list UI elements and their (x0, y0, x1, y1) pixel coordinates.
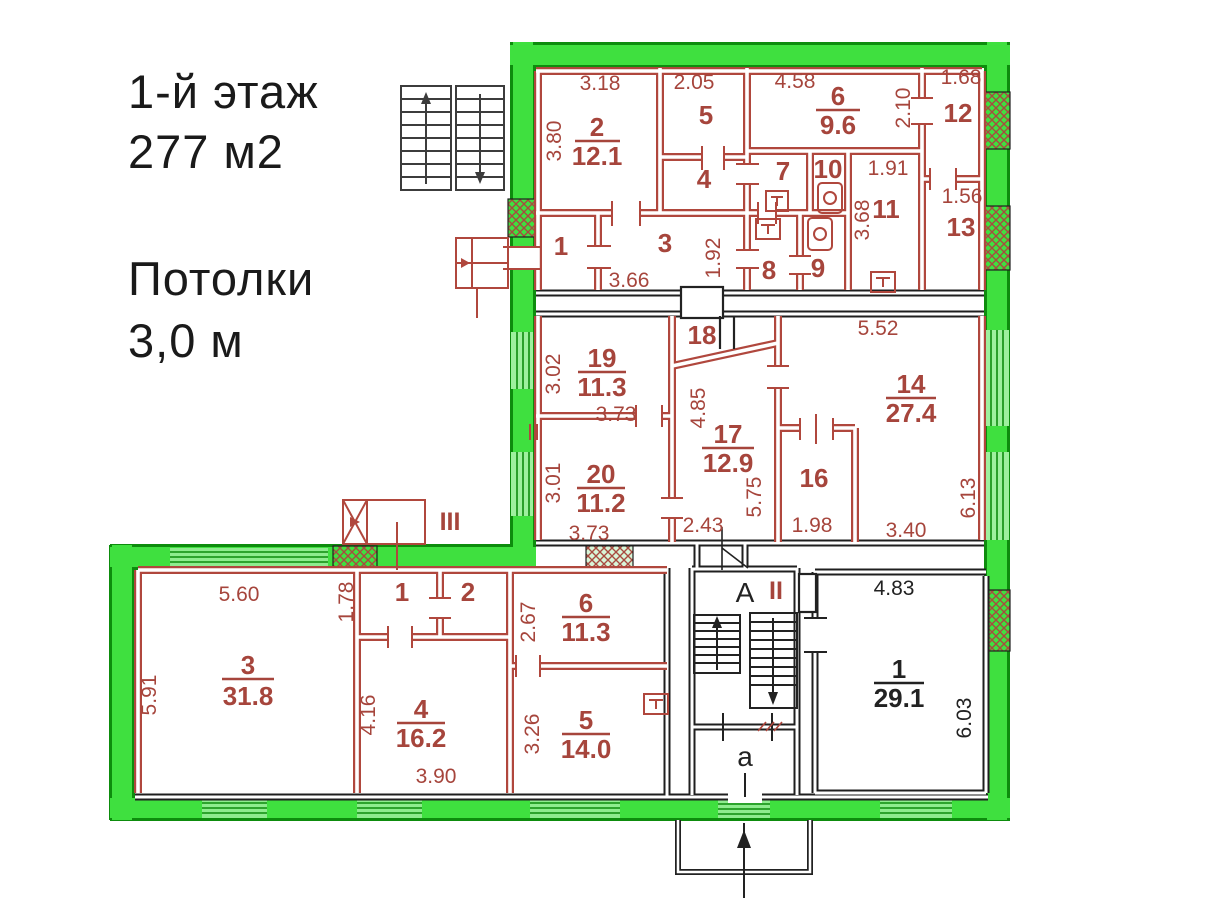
room19-area: 11.3 (577, 372, 626, 402)
room1b-area: 29.1 (874, 683, 925, 713)
door-opening (612, 201, 640, 226)
room12-number: 12 (944, 98, 973, 128)
ceilings-label: Потолки (128, 252, 314, 305)
room5b-height-dim: 3.26 (521, 714, 544, 755)
room16-width-dim: 1.98 (792, 514, 833, 537)
door-opening (736, 164, 759, 184)
hatch-icon (984, 92, 1010, 149)
door-opening (587, 246, 611, 268)
hatch-icon (984, 206, 1010, 270)
room20-area: 11.2 (576, 488, 625, 518)
room5-number: 5 (699, 100, 713, 130)
room17-area: 12.9 (703, 448, 754, 478)
room17-width-dim: 2.43 (683, 514, 724, 537)
room17-height-dim-a: 4.85 (687, 388, 710, 429)
room14-top-width-dim: 5.52 (858, 317, 899, 340)
door-opening (800, 414, 833, 444)
room5b-area: 14.0 (561, 734, 612, 764)
room1t-number: 1 (554, 231, 568, 261)
door-opening (804, 618, 827, 652)
room20-width-dim: 3.73 (569, 522, 610, 545)
room1b-height-dim: 6.03 (953, 698, 976, 739)
room4b-width-dim: 3.90 (416, 765, 457, 788)
toilet-icon (808, 218, 832, 250)
entrance-porch (678, 820, 810, 898)
room11-width-dim: 1.91 (868, 157, 909, 180)
door-opening (429, 598, 451, 618)
stairwell-stairs (694, 613, 797, 741)
room6b-height-dim: 2.67 (517, 602, 540, 643)
room4b-height-dim: 4.16 (357, 695, 380, 736)
room20-number: 20 (587, 459, 616, 489)
exit-letter-mark: а (737, 741, 753, 772)
ceilings-value: 3,0 м (128, 314, 244, 367)
door-opening (661, 498, 683, 518)
room13-number: 13 (947, 212, 976, 242)
room1s-height-dim: 1.78 (335, 582, 358, 623)
room12-width-dim: 1.68 (941, 66, 982, 89)
room9-number: 9 (811, 253, 825, 283)
upper-staircase-icon (401, 86, 504, 190)
stairwell-exit-door (728, 773, 762, 803)
door-opening (636, 405, 662, 427)
room14-number: 14 (897, 369, 926, 399)
toilet-icon (818, 183, 842, 213)
room3t-width-dim: 3.66 (609, 269, 650, 292)
window-icon (511, 332, 533, 389)
passage-box (681, 287, 723, 318)
hatch-icon (586, 544, 633, 569)
window-icon (357, 799, 422, 818)
hatch-icon (508, 199, 536, 237)
room3b-width-dim: 5.60 (219, 583, 260, 606)
room6-number: 6 (831, 81, 845, 111)
room14-area: 27.4 (886, 398, 937, 428)
room11-height-dim: 3.68 (851, 200, 874, 241)
door-opening (388, 626, 412, 648)
porch-icon (456, 238, 508, 318)
room16-number: 16 (800, 463, 829, 493)
door-box (799, 574, 816, 612)
room19-number: 19 (588, 343, 617, 373)
roman-two-mark: II (769, 577, 783, 605)
room10-number: 10 (814, 154, 843, 184)
room1b-width-dim: 4.83 (874, 577, 915, 600)
door-opening (789, 256, 811, 274)
door-opening (516, 655, 540, 677)
room19-height-dim: 3.02 (542, 354, 565, 395)
window-icon (985, 330, 1009, 426)
room6-area: 9.6 (820, 110, 856, 140)
room5-width-dim: 2.05 (674, 71, 715, 94)
room7-number: 7 (776, 156, 790, 186)
sink-icon (871, 272, 895, 292)
door-opening (767, 366, 789, 388)
room14-height-dim: 6.13 (957, 478, 980, 519)
room18-number: 18 (688, 320, 717, 350)
room2s-number: 2 (461, 577, 475, 607)
window-icon (202, 799, 267, 818)
room2-width-dim: 3.18 (580, 72, 621, 95)
room3t-number: 3 (658, 228, 672, 258)
floor-plan-svg: 1-й этаж 277 м2 Потолки 3,0 м 3.18 3.80 … (0, 0, 1209, 919)
room20-height-dim: 3.01 (542, 463, 565, 504)
room17-height-dim-b: 5.75 (743, 477, 766, 518)
room1b-number: 1 (892, 654, 906, 684)
window-icon (511, 452, 533, 516)
window-icon (530, 799, 620, 818)
room1s-number: 1 (395, 577, 409, 607)
room2-height-dim: 3.80 (543, 121, 566, 162)
room4b-area: 16.2 (396, 723, 447, 753)
room12-height-dim: 2.10 (892, 88, 915, 129)
hatch-icon (333, 546, 377, 569)
room6b-number: 6 (579, 588, 593, 618)
room13-width-dim: 1.56 (942, 185, 983, 208)
floor-plan-page: 1-й этаж 277 м2 Потолки 3,0 м 3.18 3.80 … (0, 0, 1209, 919)
room8-number: 8 (762, 255, 776, 285)
window-icon (880, 799, 952, 818)
stairwell-letter-mark: А (736, 577, 755, 608)
room11-number: 11 (872, 194, 900, 224)
room19-width-dim: 3.73 (596, 403, 637, 426)
door-opening (736, 250, 759, 268)
roman-three-mark: III (440, 508, 461, 536)
room2-area: 12.1 (572, 141, 623, 171)
room3t-height-dim: 1.92 (702, 238, 725, 279)
room3b-area: 31.8 (223, 681, 274, 711)
floor-title: 1-й этаж (128, 65, 319, 118)
window-icon (170, 548, 328, 567)
room3b-number: 3 (241, 650, 255, 680)
room5b-number: 5 (579, 705, 593, 735)
door-leaf-icon (720, 316, 734, 349)
room6b-area: 11.3 (561, 617, 610, 647)
room2-number: 2 (590, 112, 604, 142)
room3b-height-dim: 5.91 (138, 675, 161, 716)
total-area-label: 277 м2 (128, 125, 284, 178)
room4b-number: 4 (414, 694, 429, 724)
room6-width-dim: 4.58 (775, 70, 816, 93)
window-icon (985, 452, 1009, 540)
room17-number: 17 (714, 419, 743, 449)
room14-bottom-width-dim: 3.40 (886, 519, 927, 542)
room4-number: 4 (697, 164, 712, 194)
